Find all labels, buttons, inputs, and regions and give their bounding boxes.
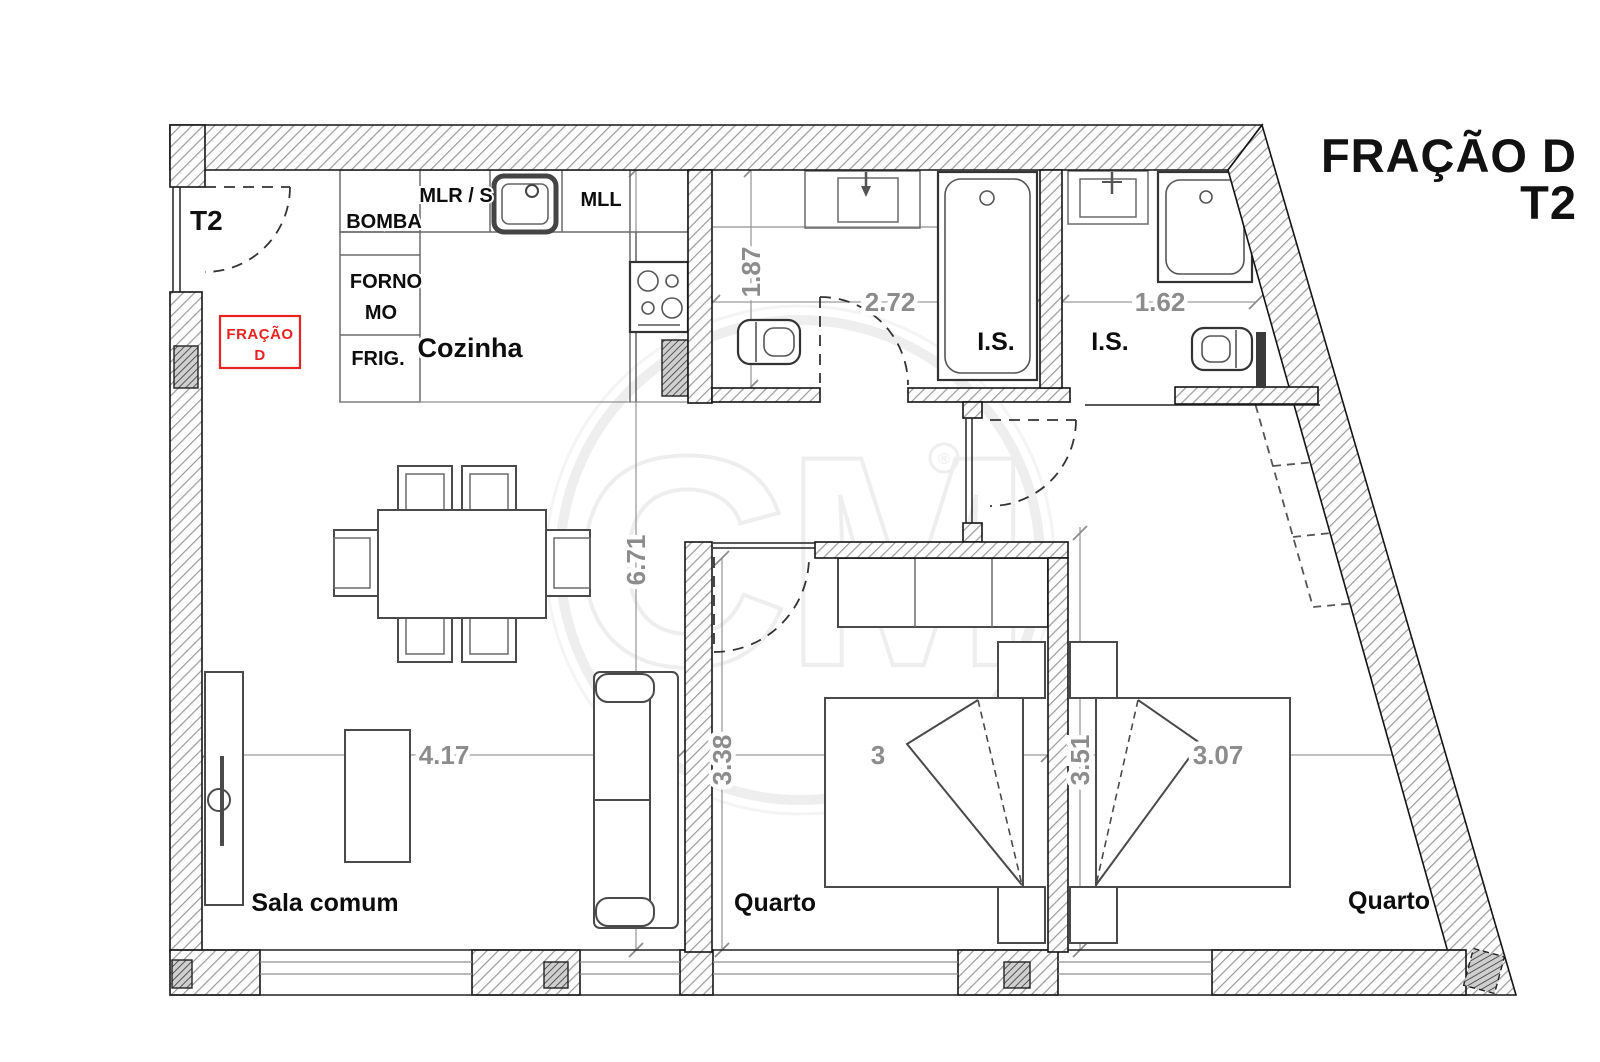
- dim-bathroom2-width: 1.62: [1135, 287, 1186, 317]
- entry-corner-wall: [170, 125, 205, 187]
- bathroom1-toilet-icon: [738, 320, 800, 364]
- room-label-kitchen: Cozinha: [418, 333, 524, 363]
- room-label-bathroom2: I.S.: [1091, 328, 1129, 356]
- dining-table: [378, 510, 546, 618]
- plan-title: FRAÇÃO D T2: [1321, 129, 1577, 229]
- bathroom-divider-wall: [1040, 170, 1062, 388]
- floor-plan-canvas: CM ®: [0, 0, 1600, 1062]
- label-frig: FRIG.: [351, 348, 404, 370]
- room-label-bedroom2: Quarto: [1348, 887, 1430, 915]
- coffee-table: [345, 730, 410, 862]
- bedroom1-top-wall: [815, 542, 1068, 558]
- fraction-stamp: FRAÇÃO D: [220, 316, 300, 368]
- nightstand: [998, 887, 1045, 943]
- window: [260, 962, 472, 974]
- stove-icon: [630, 262, 688, 332]
- sofa: [594, 672, 678, 928]
- watermark-registered-icon: ®: [938, 451, 950, 468]
- bedroom1-bed: [825, 698, 1023, 887]
- room-label-bedroom1: Quarto: [734, 889, 816, 917]
- bedroom1-wardrobe: [838, 558, 1048, 627]
- bathroom2-sink: [1068, 171, 1148, 224]
- nightstand: [1070, 887, 1117, 943]
- dim-bathroom1-width: 2.72: [865, 287, 916, 317]
- room-label-bathroom1: I.S.: [977, 328, 1015, 356]
- kitchen-bathroom1-wall: [688, 170, 712, 403]
- window: [713, 962, 958, 974]
- bedroom2-bed: [1096, 698, 1290, 887]
- window: [580, 962, 680, 974]
- dim-bedroom2-height: 3.51: [1065, 735, 1095, 786]
- top-exterior-wall: [170, 125, 1262, 170]
- stamp-line2: D: [254, 347, 265, 364]
- dim-bedroom1-width: 3: [871, 740, 885, 770]
- label-mlr-s: MLR / S: [419, 185, 492, 207]
- nightstand: [1070, 642, 1117, 698]
- plan-title-line2: T2: [1520, 176, 1577, 229]
- bathroom2-toilet-icon: [1192, 328, 1252, 370]
- windows-group: [260, 962, 1212, 974]
- kitchen-sink: [494, 176, 556, 232]
- nightstand: [998, 642, 1045, 698]
- dim-bathroom1-depth: 1.87: [736, 247, 766, 298]
- room-label-living: Sala comum: [251, 889, 398, 917]
- dim-living-width: 4.17: [419, 740, 470, 770]
- kitchen-duct-column: [662, 340, 688, 396]
- dim-bedroom1-height: 3.38: [707, 735, 737, 786]
- window: [1058, 962, 1212, 974]
- label-mll: MLL: [580, 189, 621, 211]
- plan-title-line1: FRAÇÃO D: [1321, 129, 1577, 182]
- bathroom2-stub-wall: [1256, 332, 1266, 388]
- bedroom1-furniture: [825, 558, 1048, 943]
- label-mo: MO: [365, 302, 397, 324]
- stamp-line1: FRAÇÃO: [226, 325, 293, 343]
- label-forno: FORNO: [350, 271, 422, 293]
- label-bomba: BOMBA: [346, 211, 422, 233]
- bathroom1-sink: [805, 171, 920, 228]
- dim-bedroom2-width: 3.07: [1193, 740, 1244, 770]
- entry-type-label: T2: [190, 205, 223, 236]
- dim-living-height: 6.71: [621, 535, 651, 586]
- left-exterior-wall: [170, 292, 202, 952]
